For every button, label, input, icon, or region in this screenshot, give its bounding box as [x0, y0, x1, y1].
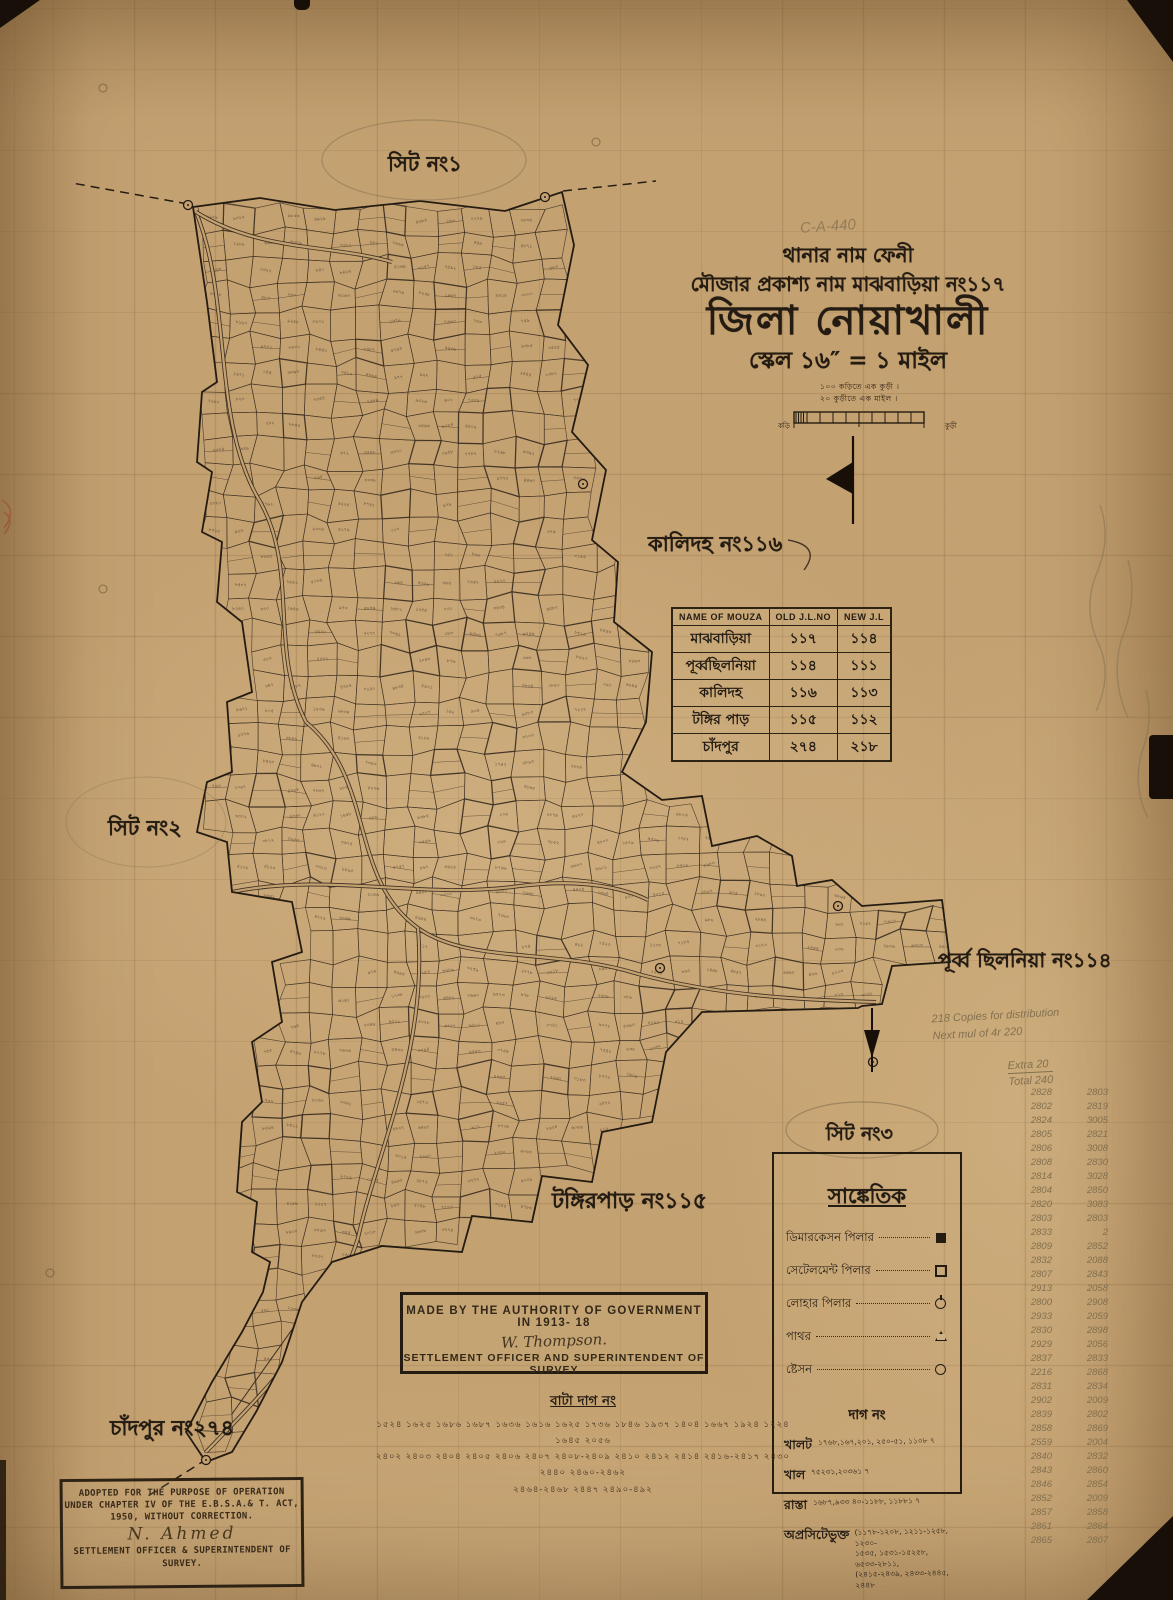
- legend-item: ষ্টেসন: [786, 1361, 948, 1380]
- svg-text:৭৩৩: ৭৩৩: [473, 318, 484, 325]
- svg-text:৯০৩৩: ৯০৩৩: [520, 1148, 533, 1155]
- svg-text:১০৫৪: ১০৫৪: [415, 607, 427, 613]
- leader-dots: [817, 1369, 930, 1370]
- svg-text:৬২৪৪: ৬২৪৪: [625, 682, 638, 690]
- edge-damage-mark: [294, 0, 310, 10]
- svg-text:৭৩৫৪: ৭৩৫৪: [313, 395, 326, 402]
- svg-text:৫৮৭১: ৫৮৭১: [520, 243, 532, 249]
- tangirpar-label: টঙ্গিরপাড় নং১১৫: [552, 1184, 707, 1221]
- svg-text:১৮৫: ১৮৫: [472, 264, 482, 270]
- svg-text:১৮৪০: ১৮৪০: [548, 683, 560, 688]
- svg-text:৯৭৮: ৯৭৮: [520, 992, 531, 999]
- mouza-cell: মাঝবাড়িয়া: [673, 626, 770, 653]
- svg-text:৭৩৪০: ৭৩৪০: [365, 759, 378, 767]
- svg-text:০৫৯৬: ০৫৯৬: [419, 838, 433, 846]
- svg-text:২৮৯৩: ২৮৯৩: [522, 759, 535, 766]
- svg-text:২৮৭২: ২৮৭২: [416, 1178, 428, 1184]
- svg-text:৭৩১: ৭৩১: [443, 606, 452, 612]
- svg-text:০৩২২: ০৩২২: [260, 267, 272, 274]
- svg-text:১৭৩৮: ১৭৩৮: [391, 992, 405, 1000]
- svg-text:৮০৫: ৮০৫: [265, 708, 274, 713]
- svg-text:৭১২৭: ৭১২৭: [574, 707, 586, 712]
- svg-text:৫২৭৭: ৫২৭৭: [363, 630, 375, 635]
- dag-no-title: দাগ নং: [774, 1406, 960, 1427]
- svg-text:৮৯৭: ৮৯৭: [390, 1202, 400, 1209]
- svg-text:১৫২৩: ১৫২৩: [598, 940, 611, 947]
- svg-text:২০৪৬: ২০৪৬: [367, 892, 380, 897]
- svg-text:৪৮০০: ৪৮০০: [596, 837, 609, 845]
- table-row: মাঝবাড়িয়া ১১৭ ১১৪: [673, 626, 891, 653]
- old-jl-cell: ২৭৪: [769, 734, 838, 761]
- svg-text:১৪৪৮: ১৪৪৮: [706, 967, 719, 974]
- dag-row: রাস্তা ১৬৮৭,৯৩৩ ৪০-১১৮৮, ১১৮৮১ ৭: [784, 1497, 950, 1517]
- legend-item: ডিমারকেসন পিলার: [786, 1229, 948, 1248]
- svg-text:১৫৭৩: ১৫৭৩: [416, 1099, 429, 1105]
- svg-text:০৭৪১: ০৭৪১: [546, 1022, 558, 1027]
- svg-text:৮৬৭: ৮৬৭: [419, 864, 429, 871]
- svg-text:৬১৬৩: ৬১৬৩: [338, 293, 351, 299]
- svg-text:০০০০: ০০০০: [521, 291, 533, 298]
- svg-text:৪১০০: ৪১০০: [263, 863, 276, 871]
- svg-text:১৯২: ১৯২: [446, 708, 456, 715]
- svg-text:০৯৫৮: ০৯৫৮: [441, 449, 455, 457]
- svg-text:২৬২৬: ২৬২৬: [570, 763, 583, 770]
- svg-text:৯৫৭৩: ৯৫৭৩: [493, 991, 506, 998]
- svg-text:৭৯৮৯: ৭৯৮৯: [366, 397, 379, 404]
- map-sheet: ৬৯০৯৯৩১৫৯৮৫৬৬৯২৮৪৬৮৫১৯৩০২০৯০৮৩৬১২৮৮৬৯৯৬০…: [0, 0, 1173, 1600]
- svg-text:৬৭২৭: ৬৭২৭: [444, 1023, 456, 1028]
- settlement-pillar-icon: [935, 1265, 947, 1277]
- svg-text:০১৫৬: ০১৫৬: [574, 553, 587, 559]
- old-jl-cell: ১১৭: [769, 626, 838, 653]
- svg-text:৪৮৬৪: ৪৮৬৪: [365, 372, 378, 380]
- svg-text:৮২৭৬: ৮২৭৬: [367, 785, 380, 791]
- svg-text:৭১৮৫: ৭১৮৫: [677, 939, 690, 946]
- svg-text:২৬৫: ২৬৫: [290, 1023, 300, 1030]
- iron-pillar-icon: [935, 1298, 946, 1309]
- svg-text:৭৫৯: ৭৫৯: [520, 318, 529, 324]
- legend-label: লোহার পিলার: [786, 1295, 851, 1314]
- kalidaha-label: কালিদহ নং১১৬: [648, 528, 782, 563]
- dag-row: অপ্রসিটেভুক্ত (১১৭৮-১২০৮, ১২১১-১২৫৮, ১২৩…: [784, 1527, 950, 1590]
- distribution-note: 218 Copies for distribution Next mul of …: [931, 1005, 1060, 1045]
- svg-text:৪৭৯৪: ৪৭৯৪: [390, 346, 403, 354]
- table-row: পূর্ব্বছিলনিয়া ১১৪ ১১১: [673, 653, 891, 680]
- svg-text:৩২৭২: ৩২৭২: [467, 1176, 480, 1184]
- svg-text:৮৫৯৪: ৮৫৯৪: [262, 1125, 274, 1131]
- svg-text:৩০৫৭: ৩০৫৭: [649, 864, 661, 871]
- svg-text:১২৮৮: ১২৮৮: [233, 241, 246, 247]
- svg-text:৮৪২৮: ৮৪২৮: [262, 758, 275, 764]
- svg-text:০৩১৩: ০৩১৩: [315, 863, 329, 871]
- svg-text:৮৭৪৭: ৮৭৪৭: [363, 501, 376, 509]
- svg-text:৭৭০০: ৭৭০০: [441, 1204, 453, 1210]
- svg-text:৮৮৪৫: ৮৮৪৫: [288, 422, 300, 429]
- svg-text:৮০০৩: ৮০০৩: [831, 968, 845, 976]
- svg-text:৪৬৫৪: ৪৬৫৪: [414, 915, 427, 923]
- scale-statement: স্কেল ১৬″ = ১ মাইল: [668, 348, 1028, 374]
- tally-column-left: 2828 2802 2824 2805 2806 2808 2814 2804 …: [1006, 1086, 1052, 1548]
- svg-text:১৬৭১: ১৬৭১: [233, 371, 245, 378]
- svg-text:৬২৮৯: ৬২৮৯: [442, 967, 454, 973]
- svg-text:৬৪৬৭: ৬৪৬৭: [418, 1124, 430, 1130]
- svg-text:৪৮৫৯: ৪৮৫৯: [364, 605, 376, 611]
- svg-text:১৮৯৭: ১৮৯৭: [754, 890, 767, 898]
- svg-text:৭৬৯০: ৭৬৯০: [419, 1153, 431, 1160]
- svg-text:৮৮৯৩: ৮৮৯৩: [314, 1227, 327, 1233]
- svg-text:৯৫৮৬: ৯৫৮৬: [469, 631, 482, 638]
- svg-text:২২৮০: ২২৮০: [207, 398, 220, 405]
- station-icon: [935, 1364, 946, 1375]
- svg-text:৭৬৫: ৭৬৫: [314, 474, 324, 481]
- svg-text:০০৭: ০০৭: [391, 526, 401, 533]
- svg-text:০৪৮৭: ০৪৮৭: [363, 346, 375, 352]
- svg-text:৮৭৭৪: ৮৭৭৪: [340, 1174, 353, 1181]
- svg-text:০২০৯: ০২০৯: [471, 216, 483, 222]
- demarcation-pillar-icon: [936, 1233, 946, 1243]
- svg-text:৩০৬৯: ৩০৬৯: [339, 915, 351, 921]
- svg-text:৯৩৮৩: ৯৩৮৩: [521, 709, 535, 717]
- svg-text:৭৪৮২: ৭৪৮২: [340, 242, 352, 247]
- svg-text:৬৪০: ৬৪০: [315, 267, 324, 273]
- svg-text:৮৫১৫: ৮৫১৫: [208, 527, 220, 534]
- svg-text:৬১৬৫: ৬১৬৫: [523, 783, 536, 791]
- stone-icon: [935, 1331, 947, 1341]
- svg-text:৬৩৯৪: ৬৩৯৪: [287, 369, 299, 376]
- scale-right-label: কুড়ী: [945, 420, 957, 432]
- svg-text:৫১০৮: ৫১০৮: [237, 863, 251, 871]
- svg-text:০৮৯: ০৮৯: [623, 994, 632, 999]
- svg-text:৬৬০০: ৬৬০০: [570, 861, 583, 869]
- svg-text:২৩৩০: ২৩৩০: [494, 1150, 506, 1156]
- authority-box: MADE BY THE AUTHORITY OF GOVERNMENT IN 1…: [400, 1292, 708, 1374]
- svg-text:৮৫০৭: ৮৫০৭: [234, 582, 246, 588]
- svg-text:৮১৬৭: ৮১৬৭: [235, 319, 247, 326]
- svg-text:২৯৩৬: ২৯৩৬: [883, 943, 896, 949]
- new-jl-cell: ১১৩: [838, 680, 891, 707]
- svg-text:৩৩৬: ৩৩৬: [834, 946, 844, 952]
- svg-text:১৫৩৬: ১৫৩৬: [313, 706, 326, 712]
- svg-text:৮৯৩০: ৮৯৩০: [286, 1229, 298, 1235]
- svg-text:৭০০২: ৭০০২: [468, 397, 480, 402]
- svg-text:৮৯৬০: ৮৯৬০: [629, 658, 641, 663]
- svg-text:৯৩১৫: ৯৩১৫: [232, 214, 244, 221]
- old-jl-cell: ১১৪: [769, 653, 838, 680]
- svg-text:৩৪৩৪: ৩৪৩৪: [493, 604, 505, 611]
- svg-text:৫৮৩: ৫৮৩: [261, 295, 271, 301]
- tally-column-right: 2803 2819 3005 2821 3008 2830 3028 2850 …: [1062, 1086, 1108, 1548]
- svg-text:৬৬৬২: ৬৬৬২: [783, 970, 795, 975]
- svg-text:৯০৪: ৯০৪: [471, 708, 480, 714]
- dag-value: ১৬৮৭,৯৩৩ ৪০-১১৮৮, ১১৮৮১ ৭: [813, 1496, 920, 1508]
- svg-text:২৯৯১: ২৯৯১: [286, 579, 298, 585]
- svg-text:৪১৬৭: ৪১৬৭: [338, 735, 350, 741]
- dag-value: ৭৫২৩১,২০৩৬১ ৭: [811, 1466, 870, 1478]
- svg-text:১৬০৯: ১৬০৯: [626, 1071, 639, 1079]
- svg-text:২৩৪৬: ২৩৪৬: [363, 1021, 376, 1027]
- svg-text:৮৯২৩: ৮৯২৩: [576, 654, 589, 661]
- dag-row: খালট ১৭৬৮,১৬৭,২০১, ২৫০-৫১, ১১০৮ ৭: [784, 1437, 950, 1457]
- old-jl-cell: ১১৬: [769, 680, 838, 707]
- svg-text:৬৬৫: ৬৬৫: [442, 580, 451, 585]
- svg-text:৮৪২৬: ৮৪২৬: [339, 268, 352, 275]
- svg-text:৯২২৫: ৯২২৫: [338, 501, 350, 508]
- svg-text:৪৭৮৬: ৪৭৮৬: [520, 1204, 533, 1211]
- sheet-3-label: সিট নং৩: [826, 1120, 893, 1152]
- svg-text:৭৩৬০: ৭৩৬০: [497, 912, 510, 919]
- svg-text:৪০১৫: ৪০১৫: [652, 891, 664, 898]
- svg-text:২০১৮: ২০১৮: [364, 1229, 378, 1237]
- svg-text:৩৬০১: ৩৬০১: [288, 344, 300, 350]
- svg-text:৯৭৭৩: ৯৭৭৩: [497, 476, 510, 481]
- svg-text:৫০২৮: ৫০২৮: [418, 1019, 431, 1025]
- svg-text:২০৩১: ২০৩১: [317, 656, 329, 661]
- svg-text:৮৬৭১: ৮৬৭১: [236, 706, 248, 713]
- svg-text:৯৮৩৪: ৯৮৩৪: [338, 708, 350, 715]
- svg-text:৮৪১৮: ৮৪১৮: [677, 863, 690, 869]
- svg-text:২৬৩৮: ২৬৩৮: [597, 993, 610, 1000]
- svg-text:৯২৫৮: ৯২৫৮: [287, 318, 300, 324]
- adoption-stamp: ADOPTED FOR THE PURPOSE OF OPERATION UND…: [60, 1477, 305, 1589]
- svg-text:২১৯৭: ২১৯৭: [859, 920, 871, 926]
- svg-text:৮৬৩: ৮৬৩: [681, 968, 692, 975]
- tally-header: Extra 20 Total 240: [1007, 1057, 1053, 1090]
- svg-text:৯৮৬: ৯৮৬: [704, 917, 714, 922]
- svg-text:৩৭৯: ৩৭৯: [547, 529, 556, 534]
- svg-text:২৮৪৪: ২৮৪৪: [754, 916, 766, 922]
- legend-box: সাঙ্কেতিক ডিমারকেসন পিলার সেটেলমেন্ট পিল…: [772, 1152, 962, 1494]
- svg-text:৫১৮৬: ৫১৮৬: [310, 577, 324, 585]
- svg-text:৩২৩৩: ৩২৩৩: [418, 994, 431, 1000]
- svg-text:৮৭৬৬: ৮৭৬৬: [495, 865, 508, 871]
- svg-text:২৪৪৪: ২৪৪৪: [807, 945, 819, 952]
- svg-text:০৬৬০: ০৬৬০: [467, 993, 479, 998]
- svg-text:২৪৭০: ২৪৭০: [599, 1100, 611, 1106]
- legend-label: সেটেলমেন্ট পিলার: [786, 1262, 871, 1281]
- svg-text:৭০৭: ৭০৭: [264, 1098, 274, 1105]
- svg-text:৩১৩: ৩১৩: [262, 655, 273, 662]
- svg-text:৬৯২৮: ৬৯২৮: [314, 216, 327, 221]
- stamp-line: 1950, WITHOUT CORRECTION.: [110, 1512, 253, 1523]
- new-jl-cell: ২১৮: [838, 734, 891, 761]
- bata-dag-block: বাটা দাগ নং ১৫২৪ ১৬২৫ ১৬৮৬ ১৬৮৭ ১৬৩৬ ১৬১…: [368, 1390, 798, 1498]
- col-name-of-mouza: NAME OF MOUZA: [673, 609, 770, 626]
- sheet-2-label: সিট নং২: [108, 812, 182, 847]
- svg-text:০১৪৫: ০১৪৫: [495, 1201, 508, 1209]
- svg-text:৫০৩৯: ৫০৩৯: [520, 1176, 532, 1183]
- stamp-title: SETTLEMENT OFFICER & SUPERINTENDENT OF S…: [63, 1544, 301, 1570]
- svg-text:৯১৫: ৯১৫: [473, 373, 482, 379]
- svg-text:৪৪০৪: ৪৪০৪: [573, 887, 585, 893]
- svg-text:৩০১৫: ৩০১৫: [395, 1153, 408, 1160]
- svg-text:৫০৪৮: ৫০৪৮: [414, 1202, 427, 1209]
- svg-text:০৩৬১: ০৩৬১: [340, 1099, 353, 1106]
- table-row: টঙ্গির পাড় ১১৫ ১১২: [673, 707, 891, 734]
- stamp-line: SETTLEMENT OFFICER & SUPERINTENDENT OF: [73, 1545, 290, 1557]
- svg-text:৮৫১৬: ৮৫১৬: [574, 630, 588, 638]
- svg-text:৯৭৩: ৯৭৩: [339, 605, 349, 611]
- svg-text:৩৮৪৮: ৩৮৪৮: [285, 735, 298, 742]
- svg-text:৫৪১: ৫৪১: [261, 1308, 270, 1314]
- authority-statement: MADE BY THE AUTHORITY OF GOVERNMENT IN 1…: [403, 1305, 705, 1329]
- svg-text:৮২৩: ৮২৩: [235, 396, 245, 402]
- svg-text:০১৮৩: ০১৮৩: [573, 1076, 587, 1084]
- svg-text:২৬৭৯: ২৬৭৯: [392, 288, 404, 295]
- svg-text:২০৪৩: ২০৪৩: [418, 656, 431, 663]
- col-new-jl: NEW J.L: [838, 609, 891, 626]
- svg-text:১৫৭৯: ১৫৭৯: [622, 840, 634, 845]
- svg-text:৪৬৬: ৪৬৬: [808, 971, 819, 978]
- bata-dag-numbers: ১৫২৪ ১৬২৫ ১৬৮৬ ১৬৮৭ ১৬৩৬ ১৬১৬ ১৬২৫ ১৭৩৬ …: [368, 1417, 798, 1498]
- svg-text:৭০৬১: ৭০৬১: [389, 630, 402, 638]
- svg-text:২৬৪: ২৬৪: [394, 580, 403, 585]
- svg-text:৮০৩৮: ৮০৩৮: [364, 477, 377, 482]
- svg-text:৩৫৫: ৩৫৫: [342, 1229, 351, 1235]
- svg-text:৯৭৪: ৯৭৪: [367, 968, 377, 975]
- svg-text:২৬৮১: ২৬৮১: [390, 606, 402, 612]
- svg-text:২৬০: ২৬০: [287, 291, 297, 298]
- svg-text:৭৬৬৩: ৭৬৬৩: [444, 319, 457, 325]
- edge-damage-mark: [1149, 735, 1173, 799]
- svg-text:৪৭৮৪: ৪৭৮৪: [340, 683, 352, 690]
- svg-text:৩৪৯৭: ৩৪৯৭: [701, 888, 713, 895]
- sheet-1-label: সিট নং১: [388, 148, 462, 183]
- svg-text:২৩২৬: ২৩২৬: [545, 995, 558, 1001]
- svg-text:৮৬৮৫: ৮৬৮৫: [417, 813, 430, 820]
- dag-value: (১১৭৮-১২০৮, ১২১১-১২৫৮, ১২৩০- ১৫৩৫, ১৫৩১-…: [855, 1526, 951, 1591]
- thompson-signature: W. Thompson.: [403, 1327, 705, 1356]
- old-jl-cell: ১১৫: [769, 707, 838, 734]
- scale-bar-graphic: [792, 406, 942, 432]
- svg-text:৯১১: ৯১১: [471, 1123, 481, 1130]
- svg-text:৯৩২৬: ৯৩২৬: [415, 398, 428, 405]
- dag-label: রাস্তা: [784, 1497, 807, 1517]
- svg-text:৪৮৩৪: ৪৮৩৪: [392, 683, 405, 691]
- svg-text:০৯১: ০৯১: [603, 682, 612, 688]
- svg-text:৮২৫৮: ৮২৫৮: [418, 290, 432, 298]
- svg-text:৮৭৪: ৮৭৪: [521, 943, 531, 949]
- svg-text:৯৭৯: ৯৭৯: [442, 501, 452, 508]
- svg-text:২৫৯২: ২৫৯২: [444, 264, 457, 272]
- svg-text:০১৫০: ০১৫০: [363, 686, 375, 692]
- svg-text:২৮৭৯: ২৮৭৯: [546, 812, 558, 818]
- svg-text:৮৮২২: ৮৮২২: [392, 1124, 405, 1131]
- svg-text:৫১০: ৫১০: [675, 1019, 684, 1024]
- svg-text:৬৩০৩: ৬৩০৩: [911, 943, 924, 948]
- svg-text:৭৬২৪: ৭৬২৪: [545, 1124, 558, 1132]
- legend-title: সাঙ্কেতিক: [774, 1180, 960, 1215]
- svg-text:৫৯০১: ৫৯০১: [421, 683, 433, 690]
- svg-text:৪৫৮০: ৪৫৮০: [546, 605, 559, 612]
- svg-text:৪০১: ৪০১: [444, 397, 454, 403]
- svg-text:২০৪: ২০৪: [499, 812, 508, 817]
- svg-text:৭৩৬২: ৭৩৬২: [467, 579, 479, 584]
- svg-text:৭৫৪২: ৭৫৪২: [599, 1047, 612, 1054]
- svg-text:৫৭৪৩: ৫৭৪৩: [289, 1049, 303, 1057]
- legend-label: পাথর: [786, 1328, 811, 1347]
- svg-text:৯৭০১: ৯৭০১: [260, 344, 272, 350]
- scale-left-label: কড়ি: [778, 420, 790, 432]
- svg-text:২১৫৭: ২১৫৭: [418, 263, 431, 270]
- svg-text:৫৬২৪: ৫৬২৪: [444, 864, 456, 870]
- mouza-cell: টঙ্গির পাড়: [673, 707, 770, 734]
- svg-text:৭৬১৩: ৭৬১৩: [884, 918, 897, 925]
- legend-label: ষ্টেসন: [786, 1361, 812, 1380]
- svg-text:৩৭৭৪: ৩৭৭৪: [441, 1227, 453, 1233]
- svg-text:০৬৬৬: ০৬৬৬: [392, 240, 406, 248]
- thana-name: থানার নাম ফেনী: [668, 244, 1028, 267]
- svg-text:৩৭০: ৩৭০: [260, 606, 270, 612]
- svg-text:০৭৬৬: ০৭৬৬: [497, 1047, 510, 1054]
- svg-text:৬৮৬৫: ৬৮৬৫: [834, 893, 847, 901]
- svg-text:১৪৫৮: ১৪৫৮: [339, 811, 353, 819]
- mouza-name: মৌজার প্রকাশ্য নাম মাঝবাড়িয়া নং১১৭: [668, 273, 1028, 296]
- stamp-line: SURVEY.: [162, 1558, 202, 1568]
- svg-text:০৮৩৬: ০৮৩৬: [520, 217, 533, 222]
- svg-text:৬৫৮: ৬৫৮: [835, 921, 845, 926]
- svg-text:৪২৭০: ৪২৭০: [571, 812, 584, 820]
- legend-item: পাথর: [786, 1328, 948, 1347]
- svg-text:৮৮৯৫: ৮৮৯৫: [341, 866, 353, 873]
- new-jl-cell: ১১২: [838, 707, 891, 734]
- dag-value: ১৭৬৮,১৬৭,২০১, ২৫০-৫১, ১১০৮ ৭: [818, 1436, 935, 1449]
- ahmed-signature: N. Ahmed: [63, 1523, 301, 1545]
- svg-text:০৫৪: ০৫৪: [263, 369, 273, 375]
- svg-text:৯৫১১: ৯৫১১: [388, 1019, 400, 1024]
- svg-text:৩২১৮: ৩২১৮: [546, 967, 560, 975]
- svg-text:২৮২: ২৮২: [265, 420, 274, 426]
- dag-label: অপ্রসিটেভুক্ত: [784, 1527, 849, 1547]
- svg-text:৮২৬৮: ৮২৬৮: [494, 448, 507, 455]
- svg-text:৮৭৭৮: ৮৭৭৮: [314, 1050, 327, 1057]
- svg-text:৩২৫৩: ৩২৫৩: [287, 836, 301, 844]
- svg-text:০১৬: ০১৬: [834, 991, 845, 998]
- svg-text:৬৯০১: ৬৯০১: [310, 762, 323, 770]
- svg-text:৬৪৭: ৬৪৭: [264, 682, 274, 689]
- new-jl-cell: ১১৪: [838, 626, 891, 653]
- svg-text:৪৪১৪: ৪৪১৪: [495, 293, 507, 298]
- legend-item: সেটেলমেন্ট পিলার: [786, 1262, 948, 1281]
- title-block: থানার নাম ফেনী মৌজার প্রকাশ্য নাম মাঝবাড…: [668, 244, 1028, 374]
- svg-text:৪৫০২: ৪৫০২: [465, 423, 477, 429]
- svg-text:৫৯৮৩: ৫৯৮৩: [703, 860, 717, 868]
- svg-text:৬৪৮২: ৬৪৮২: [443, 995, 455, 1000]
- svg-text:৯৮৫৬: ৯৮৫৬: [288, 213, 301, 218]
- svg-text:৩৩০২: ৩৩০২: [235, 813, 247, 819]
- svg-text:৯৭৭৬: ৯৭৭৬: [237, 731, 250, 738]
- svg-text:৯১২০: ৯১২০: [313, 812, 325, 818]
- mouza-cell: কালিদহ: [673, 680, 770, 707]
- svg-text:৩২৫৯: ৩২৫৯: [467, 965, 480, 973]
- svg-text:১১৩০: ১১৩০: [650, 942, 662, 948]
- district-title: জিলা নোয়াখালী: [668, 298, 1028, 344]
- svg-text:৯৫০৬: ৯৫০৬: [647, 836, 661, 844]
- purba-chhilonia-label: পূর্ব্ব ছিলনিয়া নং১১৪: [938, 946, 1112, 979]
- svg-text:৭৬৬১: ৭৬৬১: [550, 1075, 562, 1082]
- svg-text:৬৭২: ৬৭২: [340, 450, 349, 455]
- svg-text:৫৪৩৩: ৫৪৩৩: [391, 1047, 404, 1053]
- svg-text:৯৫৫৩: ৯৫৫৩: [469, 1048, 482, 1054]
- svg-text:০৮১২: ০৮১২: [262, 837, 274, 844]
- svg-text:০৩৮০: ০৩৮০: [545, 371, 557, 378]
- svg-text:৫৮৫৭: ৫৮৫৭: [730, 968, 743, 975]
- svg-text:২৮৬: ২৮৬: [368, 814, 379, 820]
- svg-text:০৪১০: ০৪১০: [340, 369, 353, 377]
- svg-text:৬৬৩৮: ৬৬৩৮: [414, 1228, 427, 1235]
- svg-text:৮৮৩৭: ৮৮৩৭: [311, 1253, 323, 1260]
- svg-text:৫৩৫৯: ৫৩৫৯: [417, 580, 429, 587]
- svg-text:৮৪৪০: ৮৪৪০: [315, 346, 327, 353]
